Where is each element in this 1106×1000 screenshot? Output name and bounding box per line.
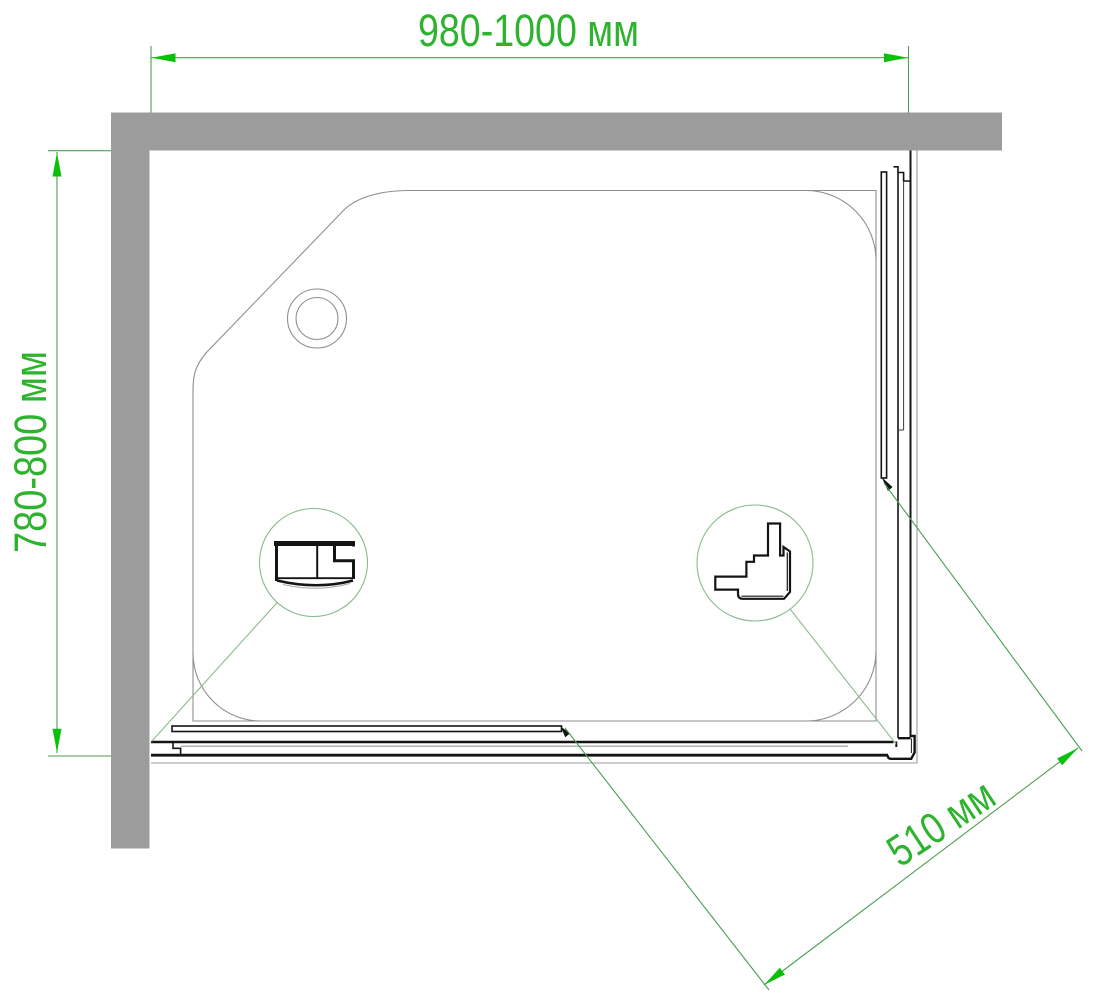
svg-text:780-800 мм: 780-800 мм <box>5 351 56 553</box>
svg-text:980-1000 мм: 980-1000 мм <box>418 5 639 56</box>
